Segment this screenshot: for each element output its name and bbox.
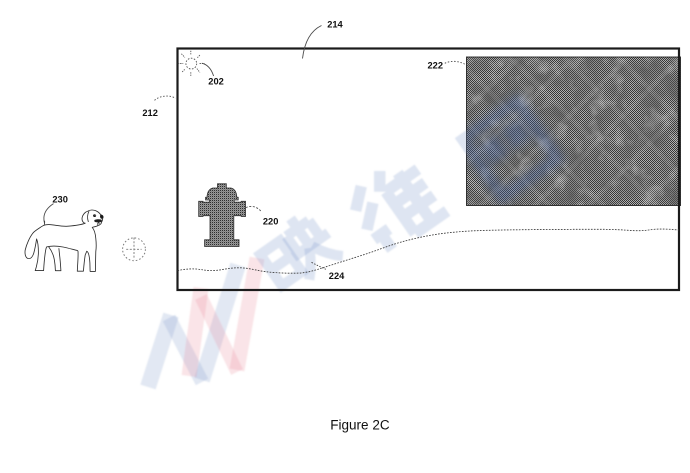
svg-text:212: 212 xyxy=(142,108,158,118)
svg-text:222: 222 xyxy=(428,61,444,71)
svg-text:214: 214 xyxy=(327,20,343,30)
svg-text:224: 224 xyxy=(329,271,345,281)
svg-text:230: 230 xyxy=(52,195,68,205)
svg-text:220: 220 xyxy=(263,216,279,226)
svg-text:202: 202 xyxy=(208,77,224,87)
svg-text:Figure 2C: Figure 2C xyxy=(330,418,390,433)
